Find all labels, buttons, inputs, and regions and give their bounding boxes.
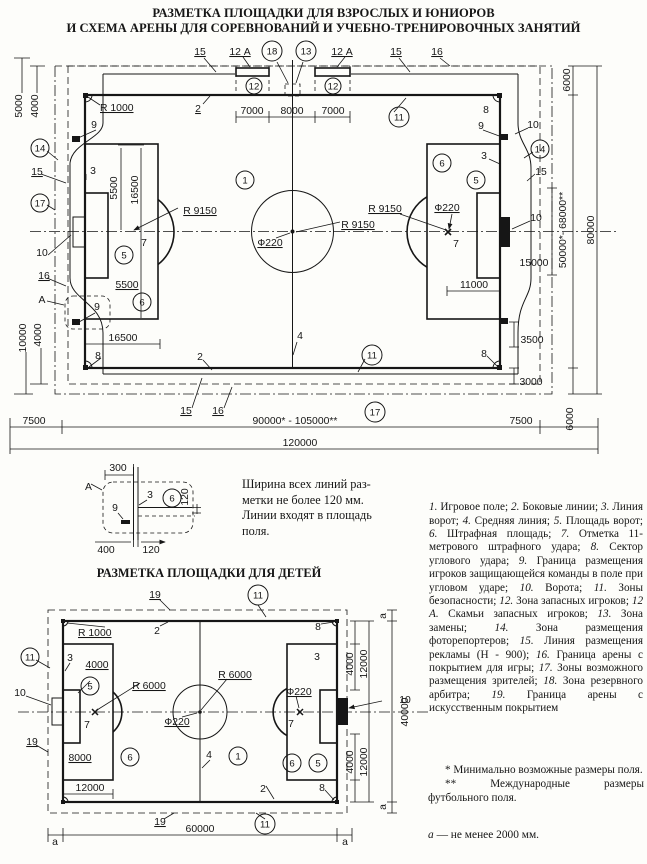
callout-10: 10	[530, 213, 542, 224]
radius-penalty-left: R 9150	[183, 206, 217, 217]
callout-6: 6	[289, 759, 294, 770]
left-goal	[73, 217, 85, 247]
callout-12a: 12 А	[229, 47, 250, 58]
adult-arena-diagram: 7000 8000 7000 15 12 А 18 13 12 А 15 16 …	[0, 38, 647, 462]
child-bottom-dim: 60000 а а	[48, 824, 352, 848]
callout-10: 10	[14, 688, 26, 699]
callout-2: 2	[260, 784, 266, 795]
dim-4000: 4000	[345, 750, 356, 773]
callout-5: 5	[87, 682, 92, 693]
dim-80000: 80000	[586, 215, 597, 244]
callout-13: 13	[301, 47, 312, 58]
callout-18: 18	[267, 47, 278, 58]
dim-400: 400	[97, 545, 115, 556]
callout-17: 17	[35, 199, 46, 210]
margin-a: а	[52, 837, 58, 848]
dim-12000: 12000	[76, 783, 105, 794]
page-title-line1: РАЗМЕТКА ПЛОЩАДКИ ДЛЯ ВЗРОСЛЫХ И ЮНИОРОВ	[0, 6, 647, 21]
callout-16: 16	[431, 47, 443, 58]
callout-9: 9	[91, 120, 97, 131]
detail-a-ref: А	[39, 295, 46, 306]
detail-a-diagram: 300 А 3 6 9 120 400 120	[75, 452, 255, 564]
legend-item: 2. Боковые линии;	[511, 501, 598, 513]
callout-10: 10	[527, 120, 539, 131]
callout-8: 8	[319, 783, 325, 794]
dim-90000-105000: 90000* - 105000**	[253, 416, 338, 427]
callout-11: 11	[260, 820, 270, 831]
dim-120: 120	[142, 545, 160, 556]
dim-4000: 4000	[345, 652, 356, 675]
dim-10000: 10000	[18, 323, 29, 352]
right-goal	[337, 698, 348, 725]
dim-3000: 3000	[519, 377, 542, 388]
radius-center: R 6000	[218, 670, 252, 681]
diameter-center: Ф220	[257, 238, 282, 249]
callout-8: 8	[95, 351, 101, 362]
callout-9: 9	[112, 503, 118, 514]
callout-2: 2	[154, 626, 160, 637]
dim-8000: 8000	[280, 106, 303, 117]
dim-5000: 5000	[14, 94, 25, 117]
margin-a: а	[378, 613, 389, 619]
left-callouts: 14 15 17 10 16 А	[31, 139, 71, 306]
note-line4: поля.	[242, 524, 426, 540]
legend-item: 12. Зона запасных игроков;	[499, 595, 629, 607]
callout-6: 6	[169, 494, 174, 505]
callout-2: 2	[197, 352, 203, 363]
callout-3: 3	[481, 151, 487, 162]
callout-15: 15	[390, 47, 402, 58]
page-title-line2: И СХЕМА АРЕНЫ ДЛЯ СОРЕВНОВАНИЙ И УЧЕБНО-…	[0, 21, 647, 36]
dim-120-line: 120	[180, 488, 191, 506]
dim-60000: 60000	[186, 824, 215, 835]
legend-item: 5. Площадь ворот;	[554, 515, 643, 527]
diameter-penalty-right: Ф220	[434, 203, 459, 214]
radius-corner: R 1000	[78, 628, 112, 639]
dim-4000: 4000	[85, 660, 108, 671]
line-width-note: Ширина всех линий раз- метки не более 12…	[242, 477, 426, 539]
dim-7500-r: 7500	[509, 416, 532, 427]
bench-right	[315, 68, 350, 76]
footnote-intl: ** Международные размеры футбольного пол…	[428, 778, 644, 805]
note-line3: Линии входят в площадь	[242, 508, 426, 524]
children-field-title: РАЗМЕТКА ПЛОЩАДКИ ДЛЯ ДЕТЕЙ	[20, 566, 398, 581]
radius-center: R 9150	[341, 220, 375, 231]
dim-15000: 15000	[520, 258, 549, 269]
callout-6: 6	[439, 159, 444, 170]
dim-4000: 4000	[33, 323, 44, 346]
children-field-diagram: 19 11 2 8 R 1000 11 3 4000 5 10 R 6000 R…	[8, 586, 442, 860]
legend-item: 1. Игровое поле;	[429, 501, 508, 513]
callout-10: 10	[36, 248, 48, 259]
callout-12: 12	[328, 82, 339, 93]
footnote-min: * Минимально возможные размеры поля.	[428, 764, 644, 777]
note-line1: Ширина всех линий раз-	[242, 477, 426, 493]
dim-8000: 8000	[68, 753, 91, 764]
callout-12: 12	[249, 82, 260, 93]
child-right-dims: 4000 12000 4000 12000 а а 40000	[345, 610, 411, 813]
dim-16500-h: 16500	[109, 333, 138, 344]
callout-11: 11	[367, 351, 377, 362]
callout-7: 7	[84, 720, 90, 731]
callout-8: 8	[315, 622, 321, 633]
callout-5: 5	[121, 251, 126, 262]
callout-11: 11	[253, 591, 263, 602]
callout-7: 7	[141, 238, 147, 249]
dim-4000: 4000	[30, 94, 41, 117]
dim-6000-tr: 6000	[562, 68, 573, 91]
callout-14: 14	[535, 145, 546, 156]
margin-a: а	[342, 837, 348, 848]
callout-19: 19	[149, 590, 161, 601]
callout-3: 3	[90, 166, 96, 177]
callout-12a: 12 А	[331, 47, 352, 58]
callout-8: 8	[483, 105, 489, 116]
dim-12000: 12000	[359, 649, 370, 678]
footnotes: * Минимально возможные размеры поля. ** …	[428, 764, 644, 806]
child-labels: 19 11 2 8 R 1000 11 3 4000 5 10 R 6000 R…	[14, 585, 411, 834]
dim-120000: 120000	[283, 438, 318, 449]
note-line2: метки не более 120 мм.	[242, 493, 426, 509]
diameter-center: Ф220	[164, 717, 189, 728]
callout-15: 15	[194, 47, 206, 58]
callout-9: 9	[478, 121, 484, 132]
dim-5500-h: 5500	[115, 280, 138, 291]
callout-6: 6	[139, 298, 144, 309]
dim-7000: 7000	[321, 106, 344, 117]
callout-3: 3	[67, 653, 73, 664]
dim-50000-68000: 50000*- 68000**	[558, 192, 569, 268]
callout-4: 4	[206, 750, 212, 761]
callout-16: 16	[212, 406, 224, 417]
dim-7000: 7000	[240, 106, 263, 117]
diameter-right: Ф220	[286, 687, 311, 698]
dim-11000: 11000	[460, 280, 488, 291]
callout-11: 11	[394, 113, 404, 124]
callout-5: 5	[315, 759, 320, 770]
dim-7500-l: 7500	[22, 416, 45, 427]
legend-item: 6. Штрафная площадь;	[429, 528, 551, 540]
callout-19: 19	[154, 817, 166, 828]
detail-a-label: А	[85, 482, 92, 493]
legend-item: 4. Средняя линия;	[463, 515, 550, 527]
radius-corner: R 1000	[100, 103, 134, 114]
callout-19: 19	[26, 737, 38, 748]
detail-a-zone	[65, 296, 110, 329]
callout-6: 6	[127, 753, 132, 764]
dim-300: 300	[109, 463, 127, 474]
callout-14: 14	[35, 144, 46, 155]
callout-3: 3	[147, 490, 153, 501]
legend-list: 1. Игровое поле; 2. Боковые линии; 3. Ли…	[429, 501, 643, 716]
page-title: РАЗМЕТКА ПЛОЩАДКИ ДЛЯ ВЗРОСЛЫХ И ЮНИОРОВ…	[0, 6, 647, 36]
right-goal	[500, 217, 510, 247]
callout-8: 8	[481, 349, 487, 360]
callout-7: 7	[453, 239, 459, 250]
callout-15: 15	[535, 167, 547, 178]
field-labels: R 1000 2 9 3 1 R 9150 7 5 6 Ф220 R 9150 …	[78, 96, 502, 372]
callout-11: 11	[25, 653, 35, 664]
document-page: РАЗМЕТКА ПЛОЩАДКИ ДЛЯ ВЗРОСЛЫХ И ЮНИОРОВ…	[0, 0, 647, 864]
left-goal	[52, 698, 63, 725]
radius-penalty: R 6000	[132, 681, 166, 692]
callout-9: 9	[94, 302, 100, 313]
callout-2: 2	[195, 104, 201, 115]
dim-16500-v: 16500	[130, 175, 141, 204]
callout-3: 3	[314, 652, 320, 663]
bench-left	[236, 68, 269, 76]
callout-4: 4	[297, 331, 303, 342]
callout-1: 1	[235, 752, 240, 763]
legend-item: 10. Ворота;	[520, 582, 583, 594]
callout-15: 15	[180, 406, 192, 417]
callout-7: 7	[288, 719, 294, 730]
dim-12000: 12000	[359, 747, 370, 776]
radius-penalty-right: R 9150	[368, 204, 402, 215]
dim-5500-v: 5500	[109, 176, 120, 199]
callout-15: 15	[31, 167, 43, 178]
margin-a: а	[378, 804, 389, 810]
dim-40000: 40000	[400, 697, 411, 726]
callout-16: 16	[38, 271, 50, 282]
callout-5: 5	[473, 176, 478, 187]
dim-3500: 3500	[520, 335, 543, 346]
callout-1: 1	[242, 176, 247, 187]
a-margin-note: а — не менее 2000 мм.	[428, 829, 644, 841]
callout-17: 17	[370, 408, 381, 419]
